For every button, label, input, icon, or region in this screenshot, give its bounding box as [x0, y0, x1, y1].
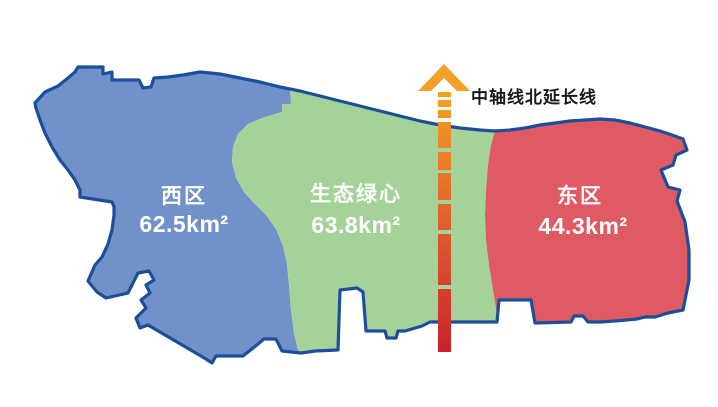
east-district-area: 44.3km² — [538, 213, 627, 239]
axis-label: 中轴线北延长线 — [471, 87, 597, 107]
map-canvas: 中轴线北延长线 西区 62.5km² 生态绿心 63.8km² 东区 44.3k… — [0, 0, 718, 407]
green-heart-district-name: 生态绿心 — [310, 182, 402, 206]
west-district-name: 西区 — [161, 185, 207, 208]
axis-arrow-up-icon — [418, 64, 470, 91]
west-district-area: 62.5km² — [139, 211, 228, 237]
district-map-infographic: 中轴线北延长线 西区 62.5km² 生态绿心 63.8km² 东区 44.3k… — [0, 0, 718, 407]
green-heart-district-area: 63.8km² — [311, 212, 400, 238]
central-axis-dashed-line — [438, 92, 451, 352]
east-district-name: 东区 — [557, 184, 603, 208]
